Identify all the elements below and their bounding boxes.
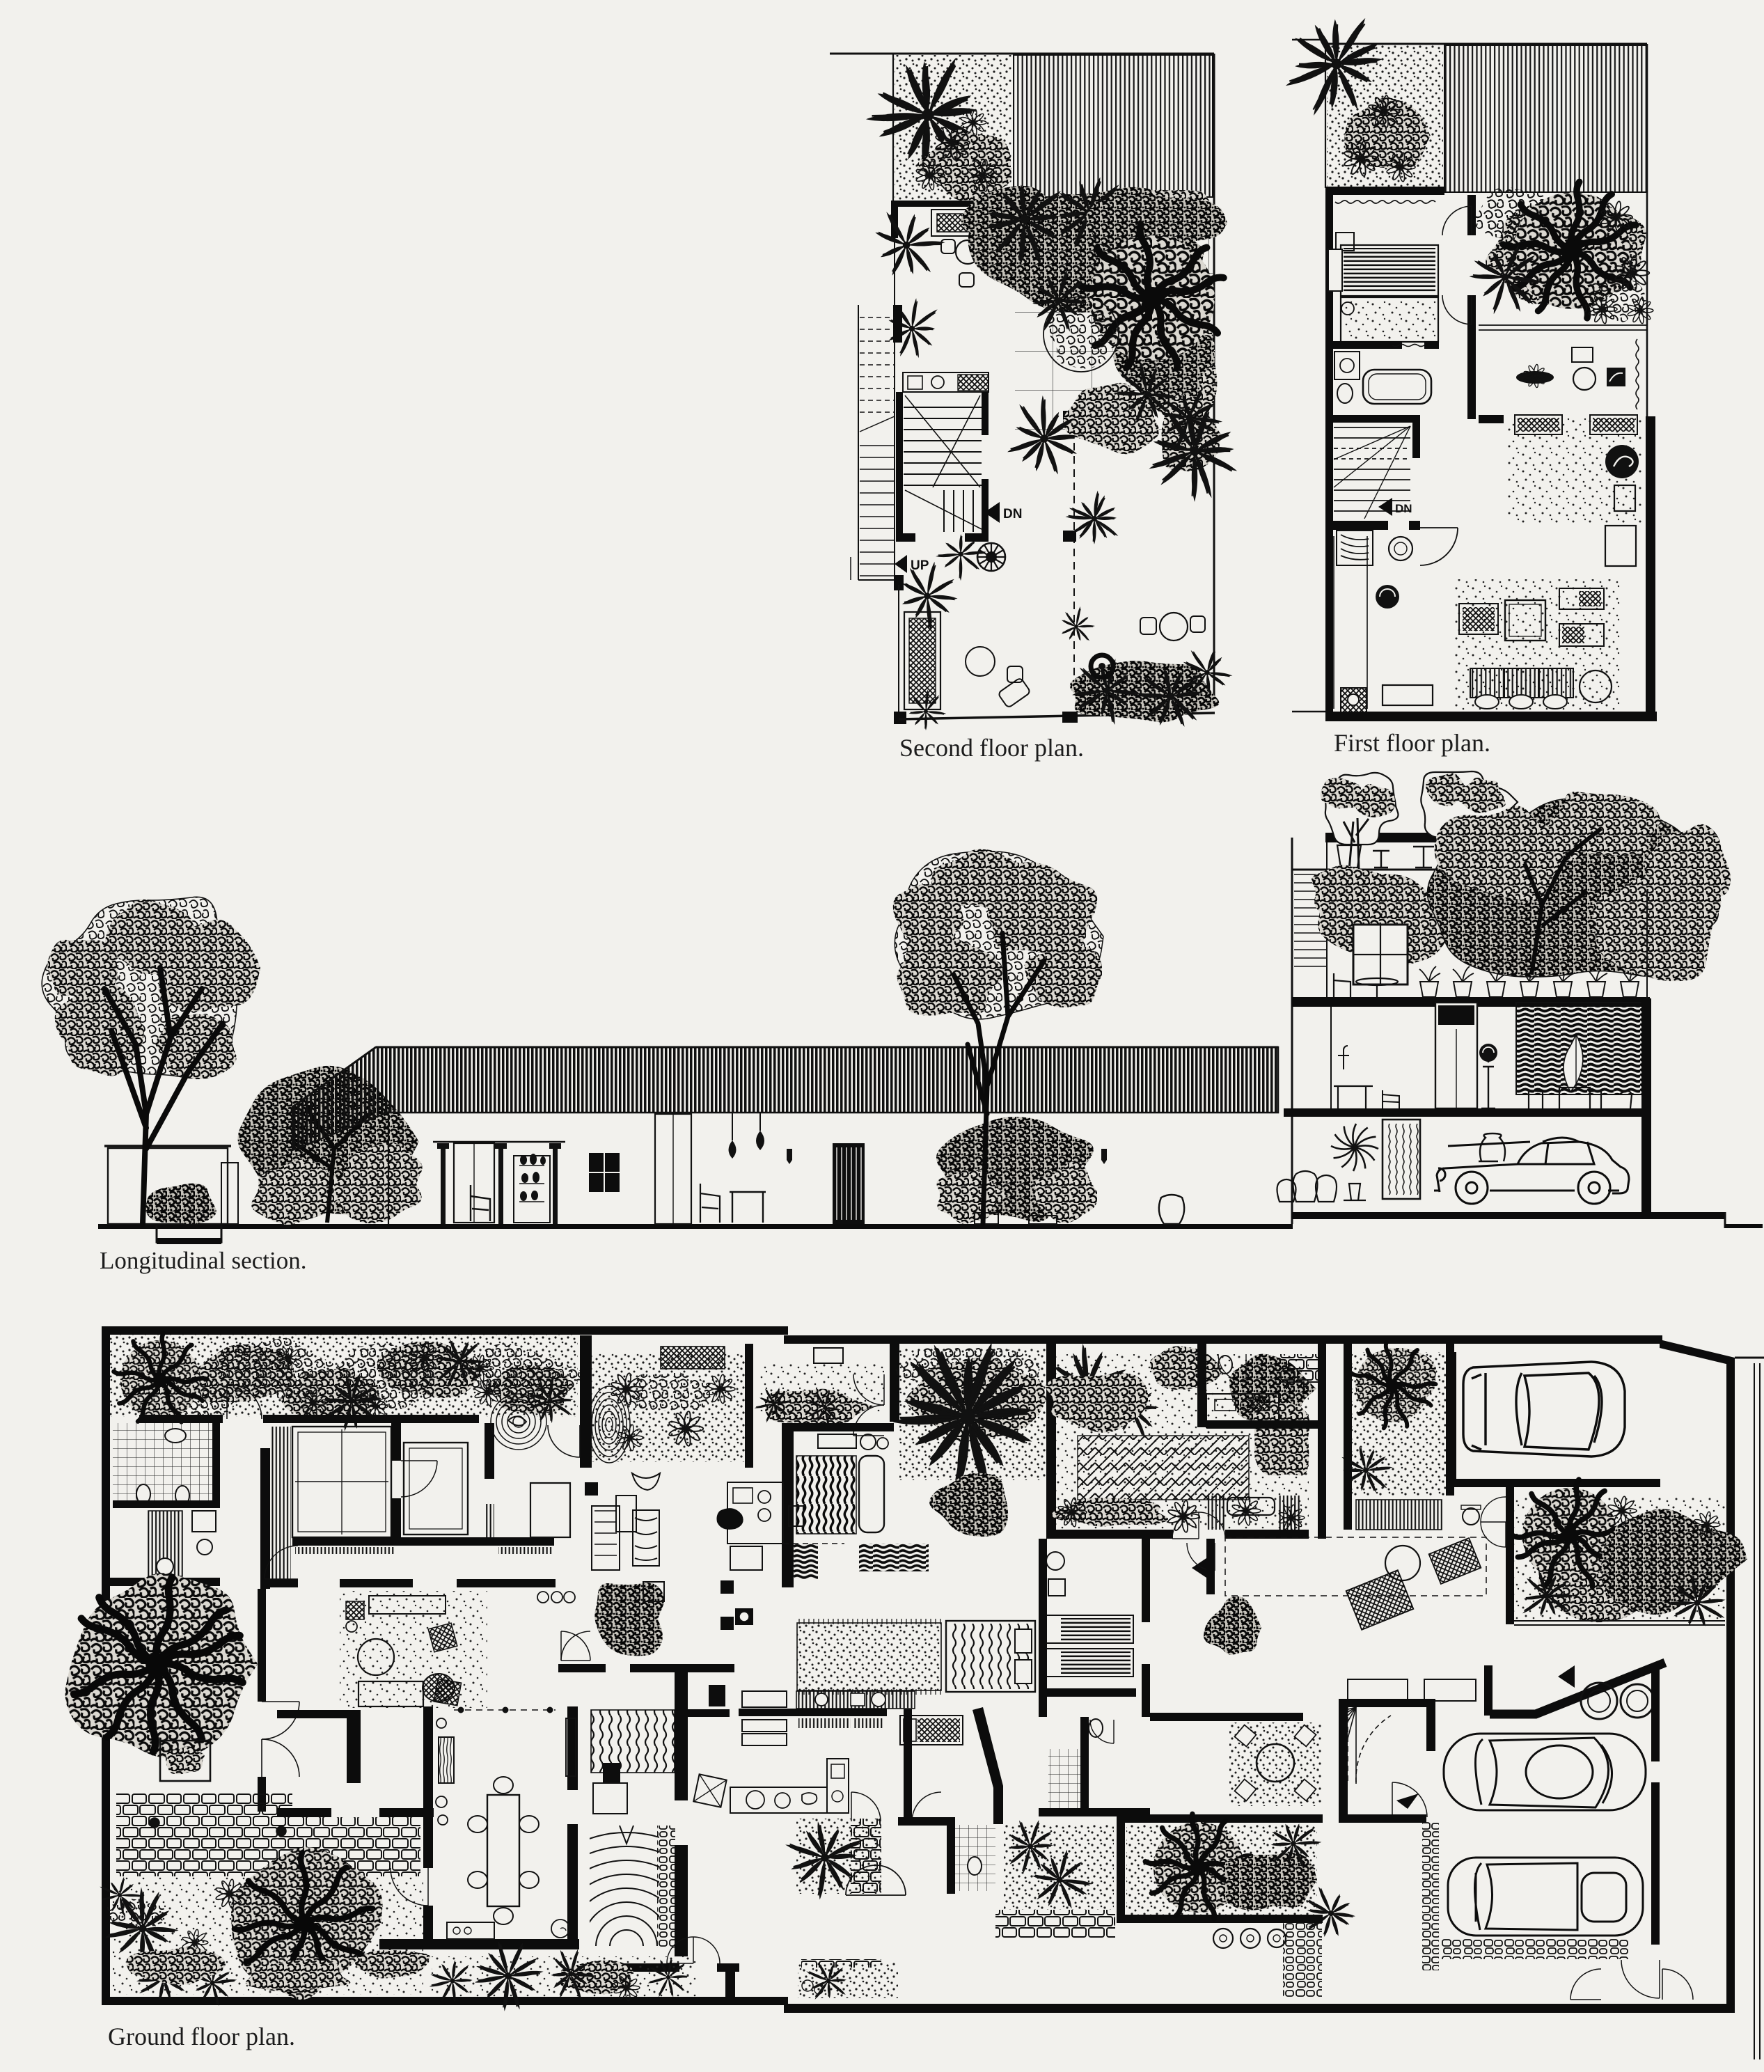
- svg-text:DN: DN: [1395, 502, 1412, 515]
- svg-text:DN: DN: [1003, 507, 1022, 521]
- svg-text:Longitudinal section.: Longitudinal section.: [100, 1247, 306, 1274]
- svg-text:Ground floor plan.: Ground floor plan.: [108, 2023, 295, 2050]
- svg-text:Second floor plan.: Second floor plan.: [899, 734, 1084, 762]
- svg-text:First floor plan.: First floor plan.: [1334, 729, 1490, 757]
